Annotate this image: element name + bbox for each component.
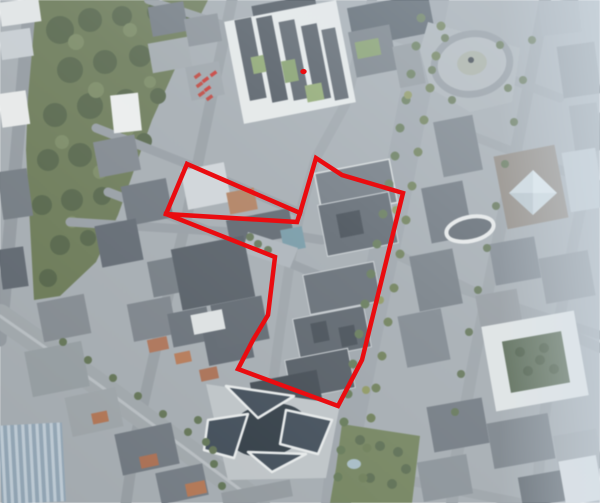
annotation-dot xyxy=(300,69,306,74)
satellite-image[interactable] xyxy=(0,0,600,503)
haze-overlay-right xyxy=(500,0,600,503)
photo-backdrop xyxy=(0,0,600,503)
aerial-map-view[interactable] xyxy=(0,0,600,503)
